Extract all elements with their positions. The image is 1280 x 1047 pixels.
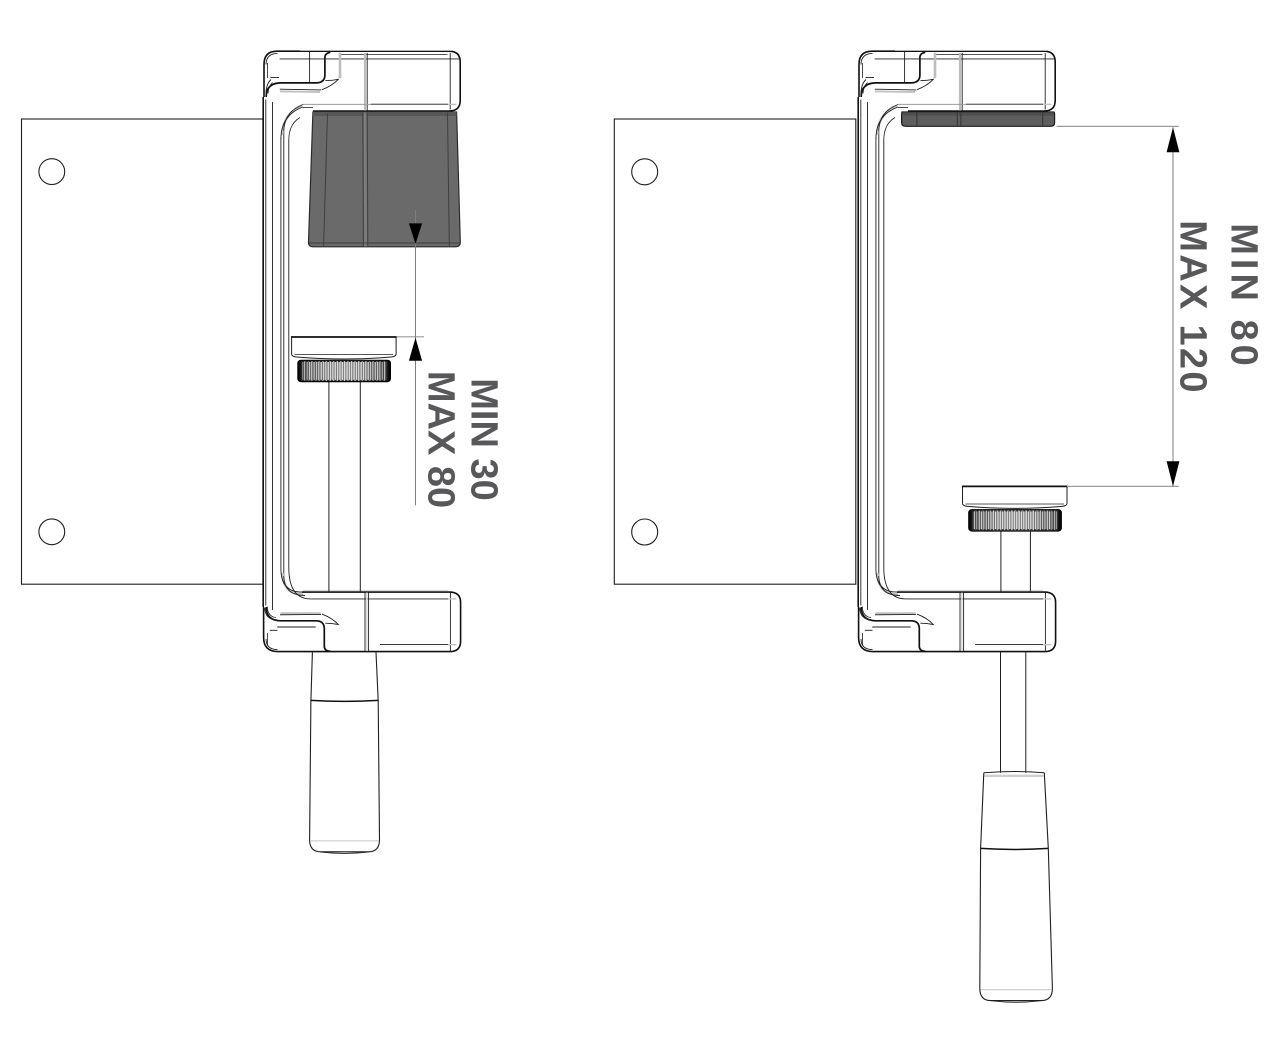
svg-text:MIN 80: MIN 80 bbox=[1223, 223, 1265, 369]
svg-text:MAX 120: MAX 120 bbox=[1172, 220, 1214, 395]
svg-text:MAX 80: MAX 80 bbox=[419, 371, 461, 508]
svg-text:MIN 30: MIN 30 bbox=[462, 378, 504, 500]
